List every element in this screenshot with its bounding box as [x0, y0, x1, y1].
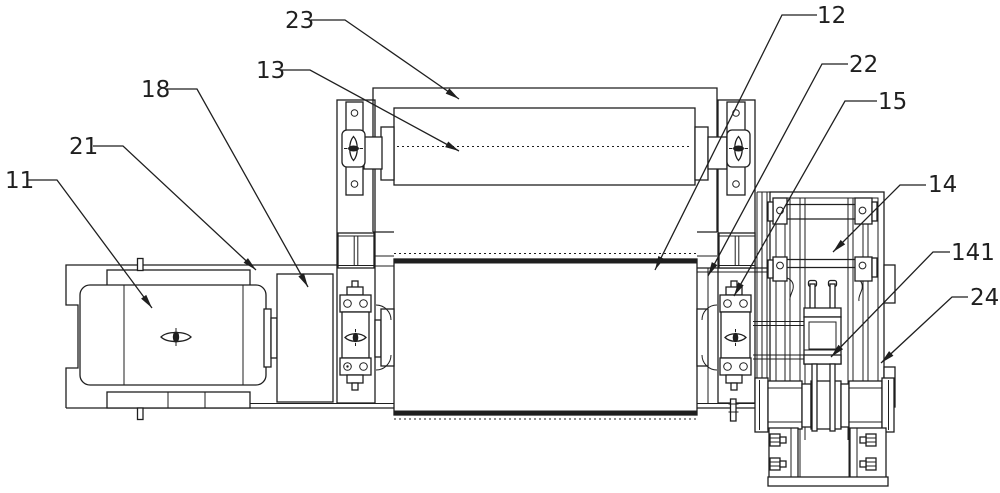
top-mounting-rail: [107, 270, 250, 286]
pedestal-strip: [757, 192, 770, 408]
bottom-mounting-rail: [107, 392, 250, 408]
motor-shaft-flange: [264, 309, 271, 367]
part-label-23: 23: [285, 8, 314, 34]
machine-drawing: 23131821111222151414124: [0, 0, 1000, 493]
lower-roller-left-connector: [375, 320, 381, 357]
part-label-22: 22: [849, 52, 878, 78]
drive-motor: [80, 285, 277, 385]
lower-roller-left-shaft: [381, 309, 394, 366]
bolt-plate: [340, 358, 371, 375]
leader-arrowhead-22: [708, 262, 717, 276]
takeup-pulley: [755, 378, 894, 432]
takeup-frame: [753, 192, 895, 486]
fitting-cap: [347, 375, 363, 383]
right-column-h-section: [719, 233, 755, 268]
screw-rod: [830, 364, 835, 431]
part-label-13: 13: [256, 58, 285, 84]
bottom-stud: [138, 408, 144, 420]
bolt-plate: [720, 295, 751, 312]
upper-roller-left-flange: [381, 127, 394, 180]
part-label-11: 11: [5, 168, 34, 194]
leader-line-21: [93, 146, 256, 270]
fitting-cap: [726, 375, 742, 383]
fitting-stem: [352, 383, 358, 390]
upper-roller-right-flange: [695, 127, 708, 180]
fitting-stem: [731, 383, 737, 390]
left-column-h-section: [338, 233, 374, 268]
left-pillow-block: [340, 281, 371, 390]
top-stud: [138, 259, 144, 271]
screw-rod: [812, 364, 817, 431]
bolt-plate: [340, 295, 371, 312]
left-top-bearing: [342, 102, 365, 195]
part-label-14: 14: [928, 172, 957, 198]
part-label-141: 141: [951, 240, 995, 266]
bolt-plate: [720, 358, 751, 375]
part-label-21: 21: [69, 134, 98, 160]
hanging-stud: [731, 399, 737, 421]
fitting-cap: [347, 287, 363, 295]
pulley-flange: [755, 378, 768, 432]
leader-line-24: [881, 297, 968, 363]
lower-roller: [375, 254, 708, 420]
upper-roller: [364, 108, 727, 185]
upper-roller-right-shaft: [708, 137, 727, 169]
patent-figure: 23131821111222151414124: [0, 0, 1000, 493]
part-label-12: 12: [817, 3, 846, 29]
leader-line-18: [165, 89, 308, 287]
part-label-24: 24: [970, 285, 999, 311]
crossbar-end-plate: [773, 198, 787, 224]
crossbar-end-plate: [855, 198, 872, 224]
coupling-housing: [277, 274, 333, 402]
base-plate: [768, 477, 888, 486]
part-label-18: 18: [141, 77, 170, 103]
upper-roller-left-shaft: [364, 137, 382, 169]
leader-line-23: [311, 20, 459, 99]
leader-arrowhead-23: [446, 88, 459, 99]
motor-shaft: [271, 318, 277, 358]
part-label-15: 15: [878, 89, 907, 115]
